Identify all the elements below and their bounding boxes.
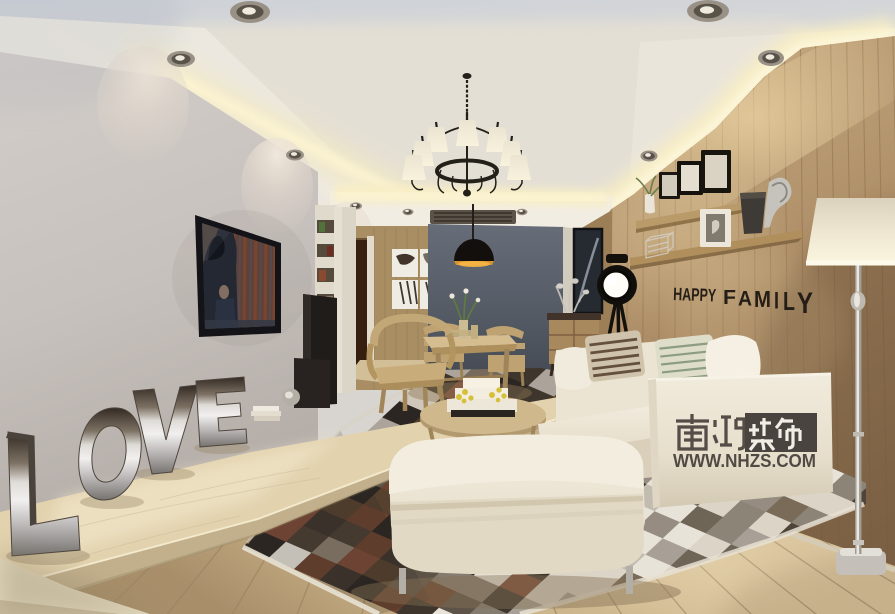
svg-text:L: L: [783, 286, 795, 316]
svg-text:Y: Y: [797, 287, 813, 320]
svg-text:WWW.NHZS.COM: WWW.NHZS.COM: [673, 451, 816, 471]
svg-text:HAPPY: HAPPY: [673, 284, 717, 305]
svg-text:I: I: [774, 288, 779, 315]
svg-text:A: A: [738, 288, 752, 311]
svg-text:M: M: [754, 286, 771, 312]
svg-text:F: F: [723, 287, 736, 309]
